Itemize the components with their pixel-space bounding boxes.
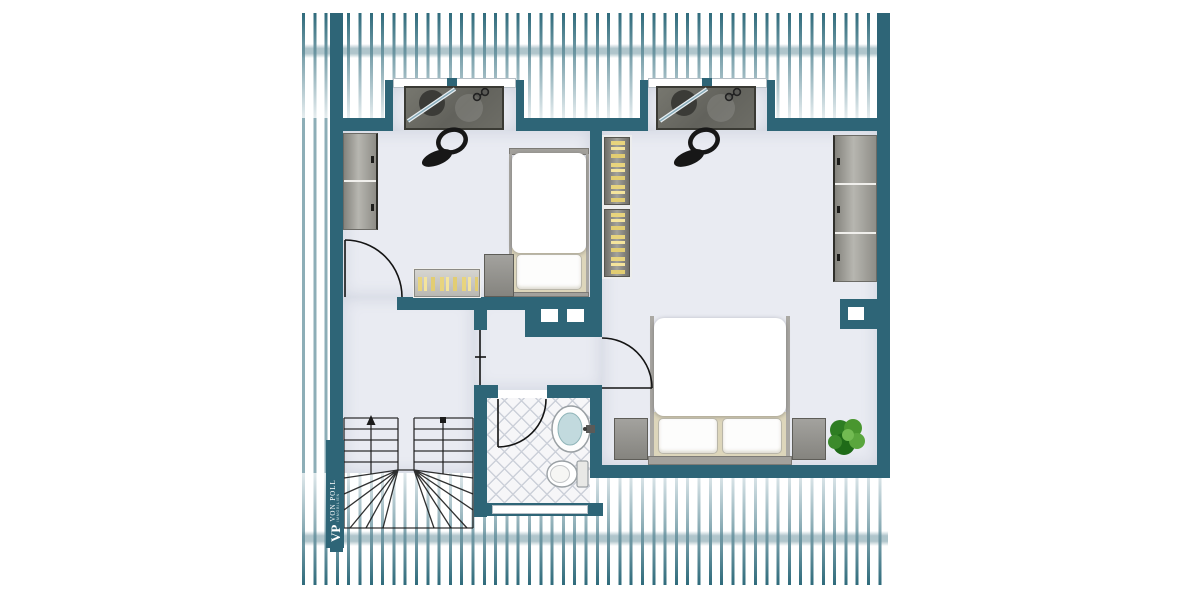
door-room-left xyxy=(345,240,402,297)
glasses-icon xyxy=(474,89,489,101)
glasses-icon xyxy=(726,89,741,101)
desk-left-props xyxy=(408,89,488,122)
logo-initials: VP xyxy=(329,525,342,542)
door-room-right xyxy=(602,338,652,388)
logo-subtitle: IMMOBILIEN xyxy=(337,479,341,521)
office-chair-right xyxy=(672,126,721,171)
sink xyxy=(552,406,595,452)
office-chair-left xyxy=(420,126,469,171)
toilet xyxy=(547,461,588,487)
door-bathroom xyxy=(498,399,546,447)
stair-up-arrow xyxy=(367,415,376,425)
plant xyxy=(828,419,865,455)
desk-right-props xyxy=(660,89,740,122)
door-hall-opening xyxy=(475,330,486,385)
stair-start-marker xyxy=(440,417,446,423)
floor-plan: VP VON POLL IMMOBILIEN xyxy=(0,0,1200,600)
staircase xyxy=(344,415,473,528)
plan-linework xyxy=(0,0,1200,600)
brand-logo: VP VON POLL IMMOBILIEN xyxy=(326,440,344,548)
